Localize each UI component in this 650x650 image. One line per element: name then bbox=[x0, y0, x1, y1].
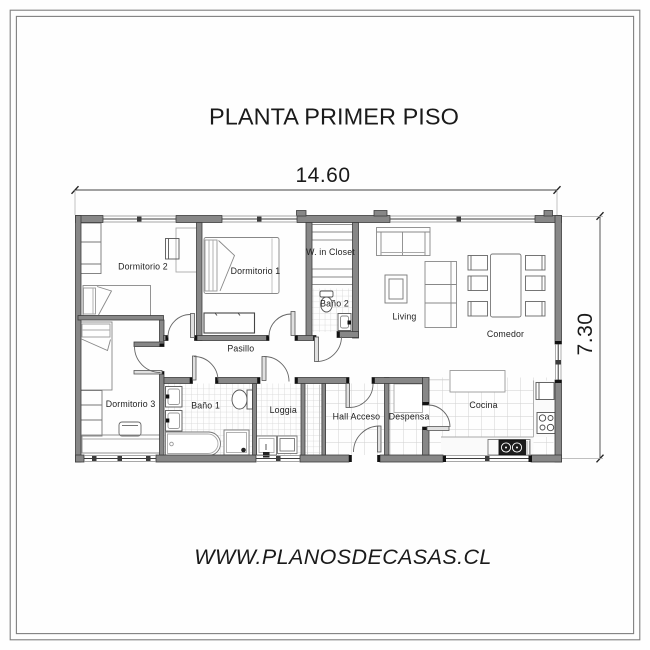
svg-text:14.60: 14.60 bbox=[295, 164, 350, 187]
svg-text:7.30: 7.30 bbox=[574, 313, 597, 356]
svg-text:Dormitorio 1: Dormitorio 1 bbox=[231, 266, 281, 276]
svg-text:Loggia: Loggia bbox=[270, 405, 297, 415]
svg-text:Despensa: Despensa bbox=[389, 412, 430, 422]
svg-text:Baño 2: Baño 2 bbox=[320, 299, 349, 309]
svg-text:Living: Living bbox=[393, 312, 417, 322]
svg-text:Pasillo: Pasillo bbox=[227, 344, 254, 354]
svg-text:WWW.PLANOSDECASAS.CL: WWW.PLANOSDECASAS.CL bbox=[194, 545, 492, 569]
svg-text:Dormitorio 3: Dormitorio 3 bbox=[106, 399, 156, 409]
svg-text:PLANTA PRIMER PISO: PLANTA PRIMER PISO bbox=[209, 104, 459, 130]
svg-text:Comedor: Comedor bbox=[487, 329, 524, 339]
svg-text:Baño 1: Baño 1 bbox=[191, 401, 220, 411]
svg-text:Cocina: Cocina bbox=[469, 400, 497, 410]
svg-text:W. in Closet: W. in Closet bbox=[306, 247, 355, 257]
svg-text:Hall Acceso: Hall Acceso bbox=[333, 412, 381, 422]
svg-text:Dormitorio 2: Dormitorio 2 bbox=[118, 262, 168, 272]
